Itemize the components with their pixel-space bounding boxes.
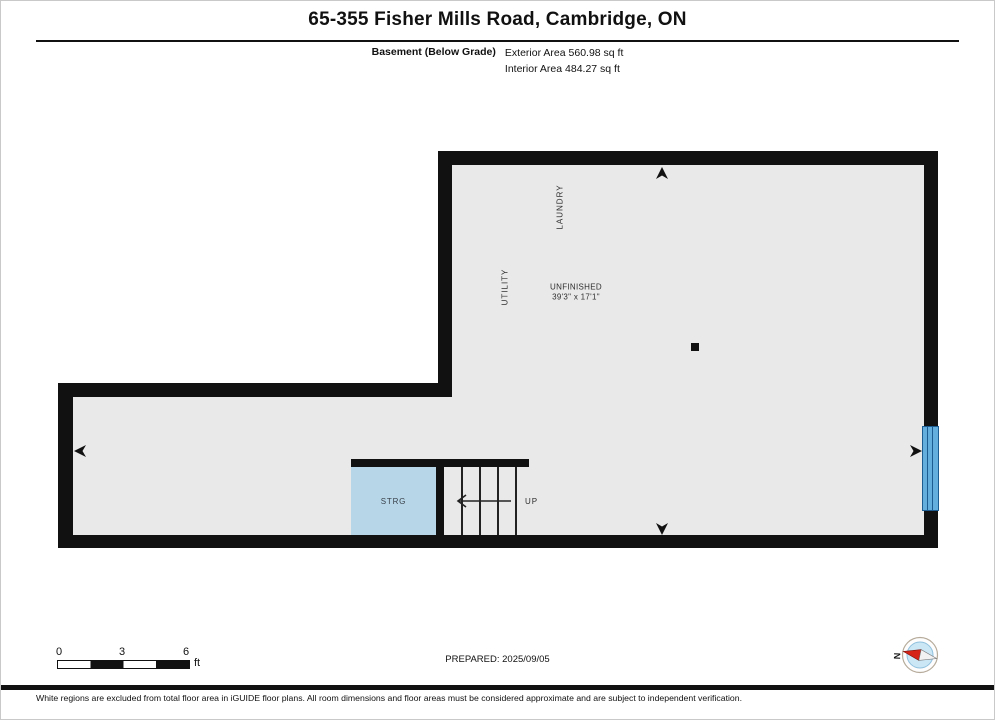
- wall-bottom: [58, 535, 938, 548]
- stair-tread: [515, 467, 517, 535]
- wall-top: [438, 151, 938, 165]
- wall-step: [58, 383, 452, 397]
- unfinished-room-dimensions: 39'3" x 17'1": [550, 292, 602, 302]
- utility-room-label: UTILITY: [501, 269, 510, 306]
- floorplan-page: 65-355 Fisher Mills Road, Cambridge, ON …: [0, 0, 995, 720]
- stairs-direction-label: UP: [525, 497, 538, 506]
- window-icon: [922, 426, 939, 511]
- interior-area-value: Interior Area 484.27 sq ft: [505, 62, 623, 78]
- exterior-area-value: Exterior Area 560.98 sq ft: [505, 46, 623, 62]
- title-divider: [36, 40, 959, 42]
- wall-storage-divider: [436, 467, 444, 535]
- compass-icon: [899, 634, 943, 678]
- arrow-right-icon: [910, 445, 922, 457]
- footer-divider: [1, 685, 995, 690]
- wall-left: [58, 383, 73, 548]
- wall-storage-top: [351, 459, 529, 467]
- prepared-date: PREPARED: 2025/09/05: [1, 654, 994, 665]
- floor-summary: Basement (Below Grade) Exterior Area 560…: [1, 46, 994, 77]
- arrow-up-icon: [656, 167, 668, 179]
- compass-north-label: N: [892, 653, 902, 660]
- laundry-room-label: LAUNDRY: [556, 184, 565, 229]
- unfinished-room-label: UNFINISHED 39'3" x 17'1": [550, 283, 602, 302]
- column-marker: [691, 343, 699, 351]
- window-pane-line: [932, 427, 933, 510]
- unfinished-room-name: UNFINISHED: [550, 283, 602, 293]
- disclaimer-text: White regions are excluded from total fl…: [36, 693, 742, 703]
- page-title: 65-355 Fisher Mills Road, Cambridge, ON: [1, 9, 994, 31]
- storage-room-label: STRG: [381, 497, 406, 506]
- area-values: Exterior Area 560.98 sq ft Interior Area…: [505, 46, 623, 77]
- floor-name-label: Basement (Below Grade): [372, 46, 496, 58]
- wall-upper-left: [438, 151, 452, 397]
- storage-room: STRG: [351, 467, 436, 535]
- unfinished-room-floor: [452, 165, 924, 535]
- wall-right-upper: [924, 151, 938, 426]
- stairs-up-arrow-icon: [451, 493, 513, 509]
- arrow-down-icon: [656, 523, 668, 535]
- window-pane-line: [927, 427, 928, 510]
- arrow-left-icon: [74, 445, 86, 457]
- wall-right-lower: [924, 511, 938, 548]
